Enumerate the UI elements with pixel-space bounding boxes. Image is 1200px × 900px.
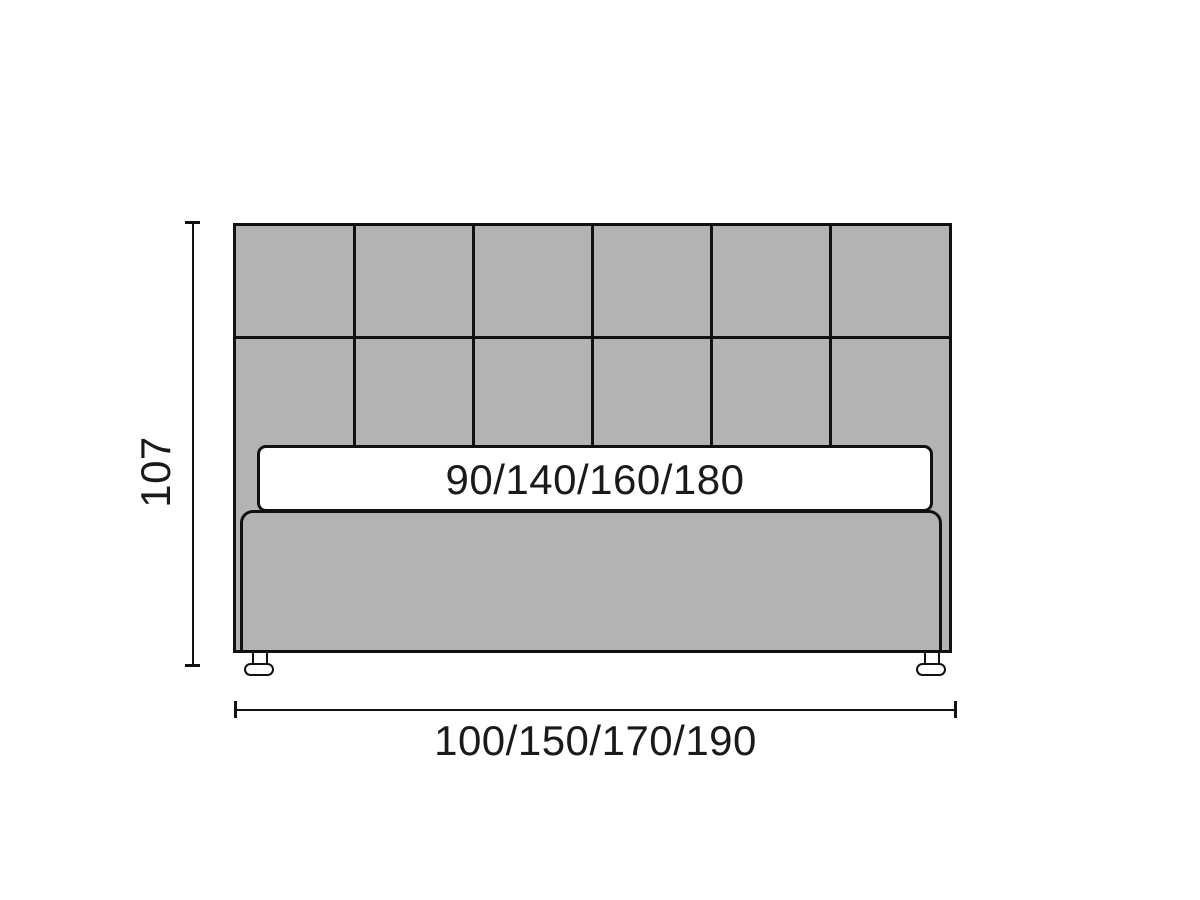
- width-dimension-line: [236, 709, 955, 711]
- bed-foot-pad-right: [916, 663, 946, 676]
- bed-foot-pad-left: [244, 663, 274, 676]
- headboard-seam-horizontal: [236, 336, 949, 339]
- bed-dimension-diagram: 90/140/160/180 107 100/150/170/190: [0, 0, 1200, 900]
- mattress: 90/140/160/180: [257, 445, 933, 512]
- width-dimension-label: 100/150/170/190: [236, 719, 955, 763]
- width-dimension-tick-left: [234, 701, 237, 718]
- mattress-width-options-label: 90/140/160/180: [446, 457, 745, 501]
- height-dimension-tick-top: [185, 221, 200, 224]
- bed-base: [240, 510, 942, 653]
- height-dimension-tick-bottom: [185, 664, 200, 667]
- width-dimension-tick-right: [954, 701, 957, 718]
- height-dimension-label-wrap: 107: [118, 425, 194, 519]
- height-dimension-label: 107: [135, 436, 177, 508]
